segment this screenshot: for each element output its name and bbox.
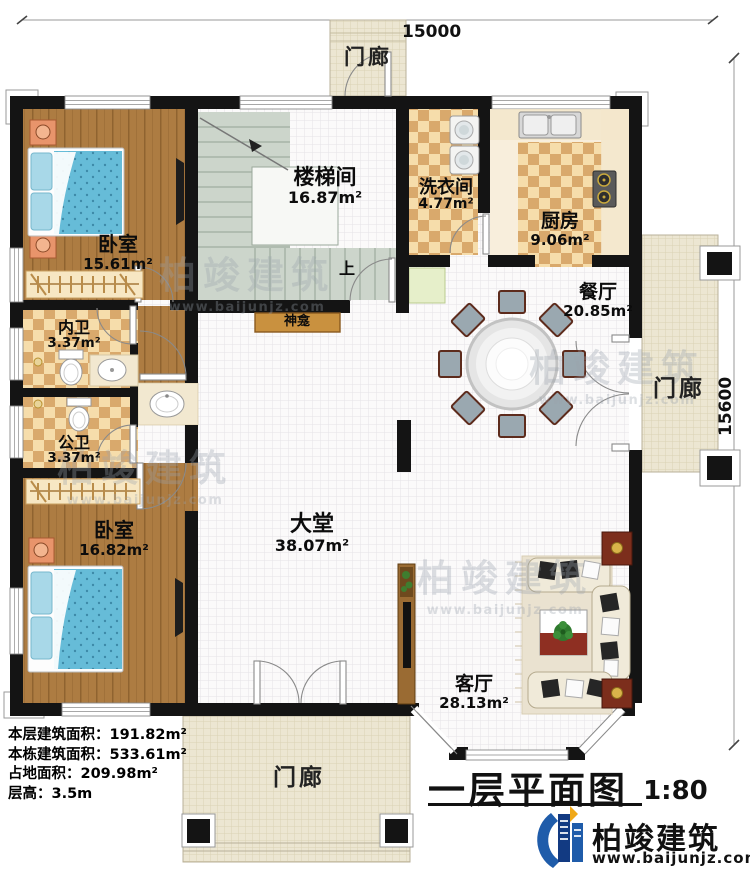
room-label-bedroom1: 卧室 15.61m²: [83, 234, 153, 272]
room-label-bath-inner: 内卫 3.37m²: [47, 319, 100, 351]
porch-right-label: 门廊: [653, 377, 705, 402]
coffee-table: [540, 610, 587, 655]
vanity-sink: [150, 391, 184, 417]
stat-floor-height: 层高：3.5m: [8, 785, 187, 805]
brand-url: www.baijunjz.com: [592, 849, 750, 867]
floor-plan-page: 柏竣建筑 www.baijunjz.com 柏竣建筑 www.baijunjz.…: [0, 0, 750, 882]
tv-bedroom1: [176, 158, 184, 225]
brand-logo-icon: [537, 806, 583, 868]
toilet-bath-public: [67, 398, 91, 431]
room-label-bath-public: 公卫 3.37m²: [47, 434, 100, 466]
room-label-dining: 餐厅 20.85m²: [563, 282, 633, 319]
stat-total-area: 本栋建筑面积：533.61m²: [8, 746, 187, 766]
stat-footprint-area: 占地面积：209.98m²: [8, 765, 187, 785]
tv-cabinet-partition: [398, 564, 415, 704]
shrine-label: 神龛: [284, 315, 310, 329]
title-underline: [428, 803, 642, 806]
building-stats: 本层建筑面积：191.82m² 本栋建筑面积：533.61m² 占地面积：209…: [8, 726, 187, 804]
kitchen-sink: [519, 112, 581, 138]
room-label-living: 客厅 28.13m²: [439, 674, 509, 711]
porch-bottom-label: 门廊: [273, 766, 325, 791]
stat-floor-area: 本层建筑面积：191.82m²: [8, 726, 187, 746]
room-label-kitchen: 厨房 9.06m²: [530, 211, 589, 248]
dimension-height-label: 15600: [716, 377, 736, 436]
wardrobe-bedroom1: [26, 271, 143, 298]
room-label-bedroom2: 卧室 16.82m²: [79, 520, 149, 558]
shower-bath-inner: [34, 358, 42, 366]
stairs-up-label: 上: [339, 260, 355, 277]
sofa-set: [515, 532, 632, 714]
toilet-bath-inner: [59, 350, 83, 385]
room-label-stairwell: 楼梯间 16.87m²: [288, 166, 362, 206]
porch-top-label: 门廊: [344, 46, 392, 69]
kitchen-stove: [593, 171, 616, 207]
sink-bath-inner: [90, 355, 138, 386]
tv-bedroom2: [175, 578, 183, 637]
wardrobe-bedroom2: [26, 479, 140, 504]
dining-plant-mat: [409, 268, 445, 303]
room-label-hall: 大堂 38.07m²: [275, 513, 349, 554]
room-label-laundry: 洗衣间 4.77m²: [418, 178, 473, 213]
dimension-width-label: 15000: [402, 22, 461, 42]
porch-right: [642, 235, 740, 486]
shower-bath-public: [34, 400, 42, 408]
plan-scale: 1:80: [643, 776, 708, 806]
